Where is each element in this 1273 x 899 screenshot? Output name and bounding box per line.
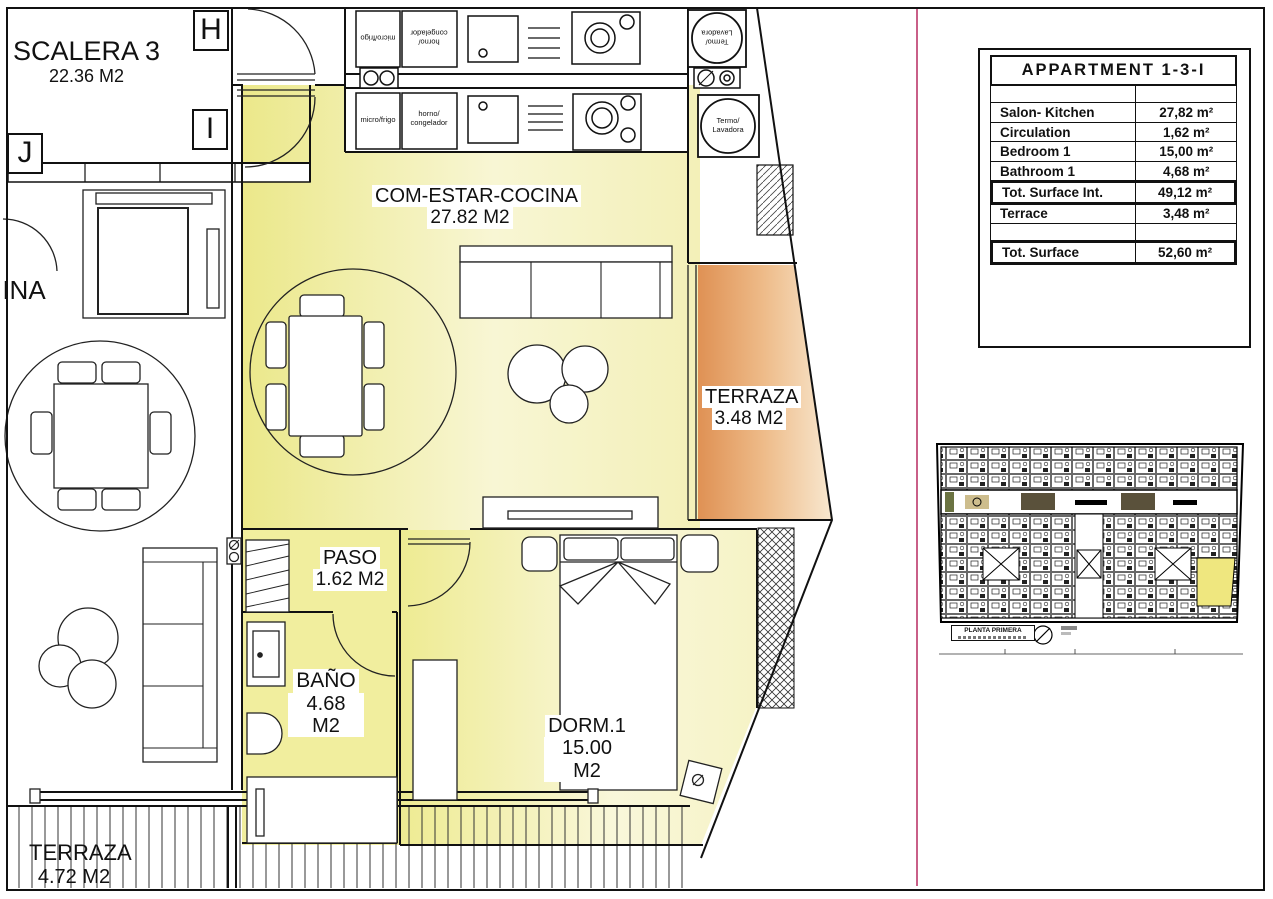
floorplan-sheet: { "frame": { "divider_color": "#c95f88" … (0, 0, 1273, 899)
sheet-border (6, 7, 1265, 891)
table-row-total: Tot. Surface 52,60 m² (990, 240, 1237, 265)
table-row-total-int: Tot. Surface Int. 49,12 m² (990, 180, 1237, 205)
